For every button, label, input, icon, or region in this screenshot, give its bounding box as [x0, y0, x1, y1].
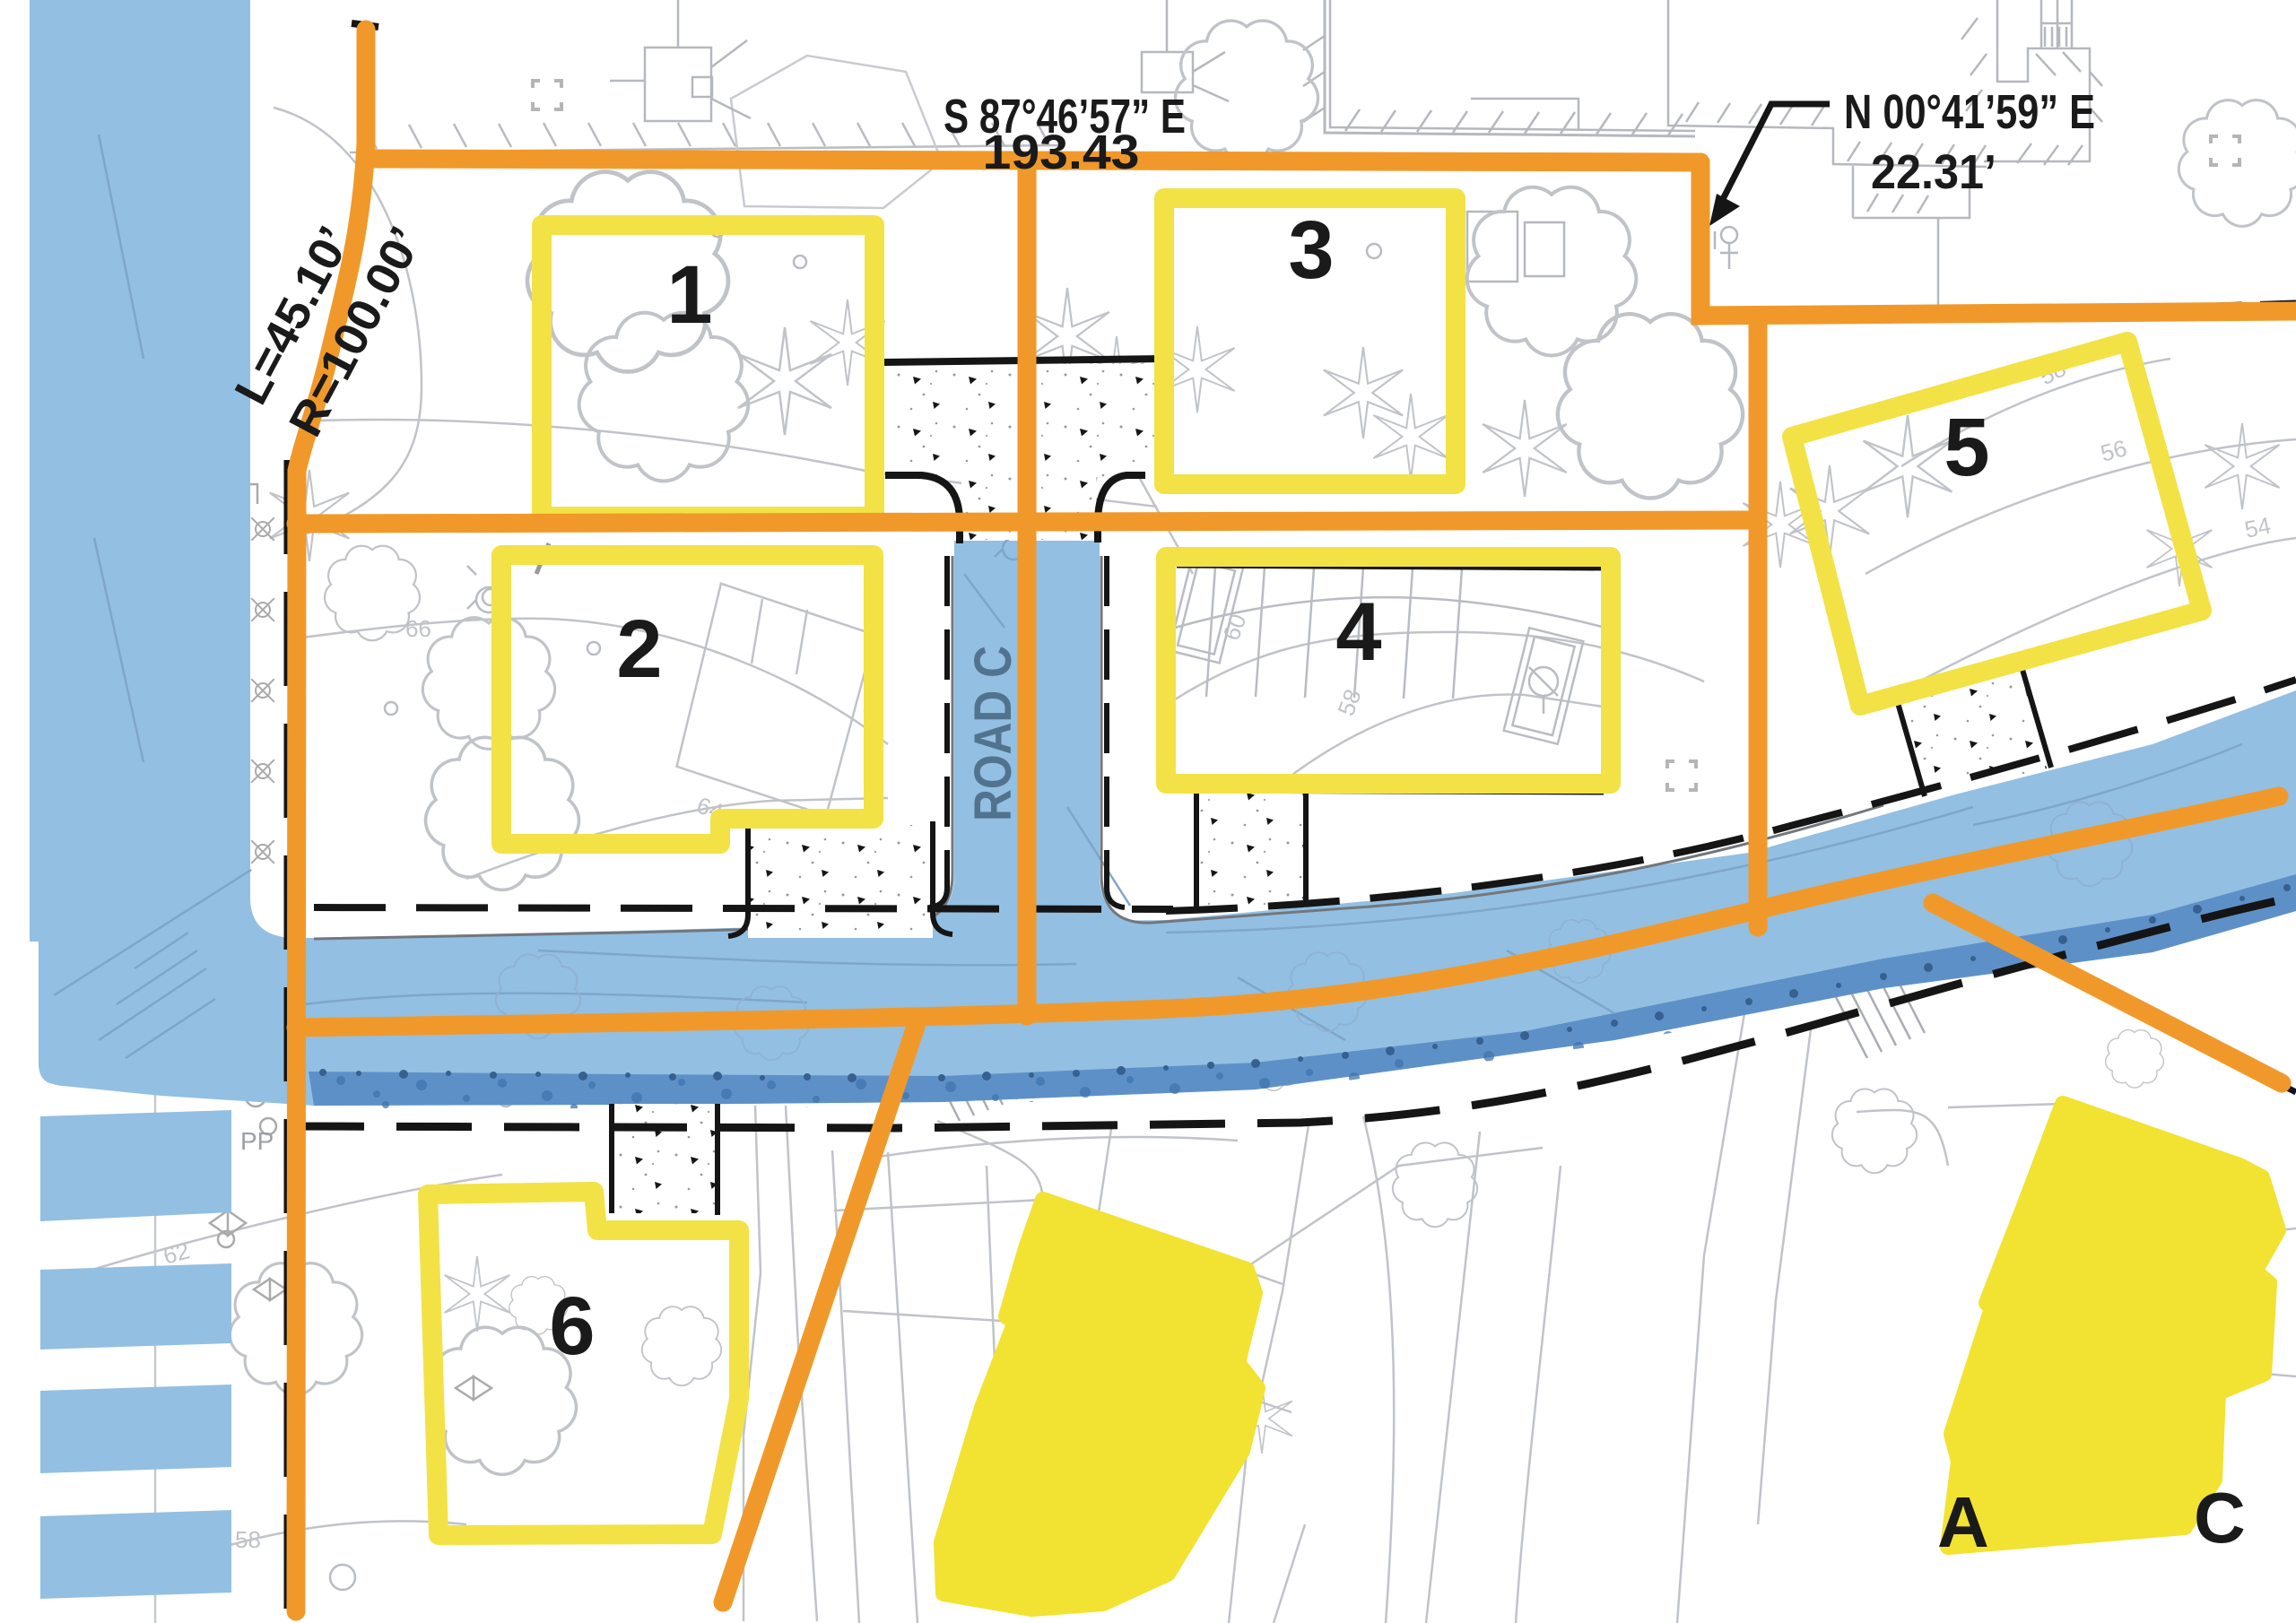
svg-text:66: 66 — [405, 615, 431, 642]
svg-text:A: A — [1937, 1482, 1989, 1562]
svg-text:6: 6 — [549, 1280, 595, 1372]
svg-text:C: C — [2194, 1478, 2246, 1558]
svg-text:1: 1 — [666, 249, 712, 341]
svg-text:2: 2 — [616, 603, 662, 695]
svg-text:3: 3 — [1288, 204, 1334, 296]
svg-text:193.43: 193.43 — [983, 126, 1140, 179]
svg-text:54: 54 — [2242, 512, 2274, 543]
svg-text:5: 5 — [1944, 402, 1989, 493]
svg-text:N 00°41’59” E: N 00°41’59” E — [1844, 85, 2095, 139]
svg-text:4: 4 — [1335, 586, 1381, 678]
svg-text:ROAD C: ROAD C — [964, 646, 1022, 821]
svg-text:PP: PP — [240, 1127, 274, 1155]
svg-text:58: 58 — [235, 1526, 261, 1553]
svg-text:22.31’: 22.31’ — [1871, 145, 1996, 199]
